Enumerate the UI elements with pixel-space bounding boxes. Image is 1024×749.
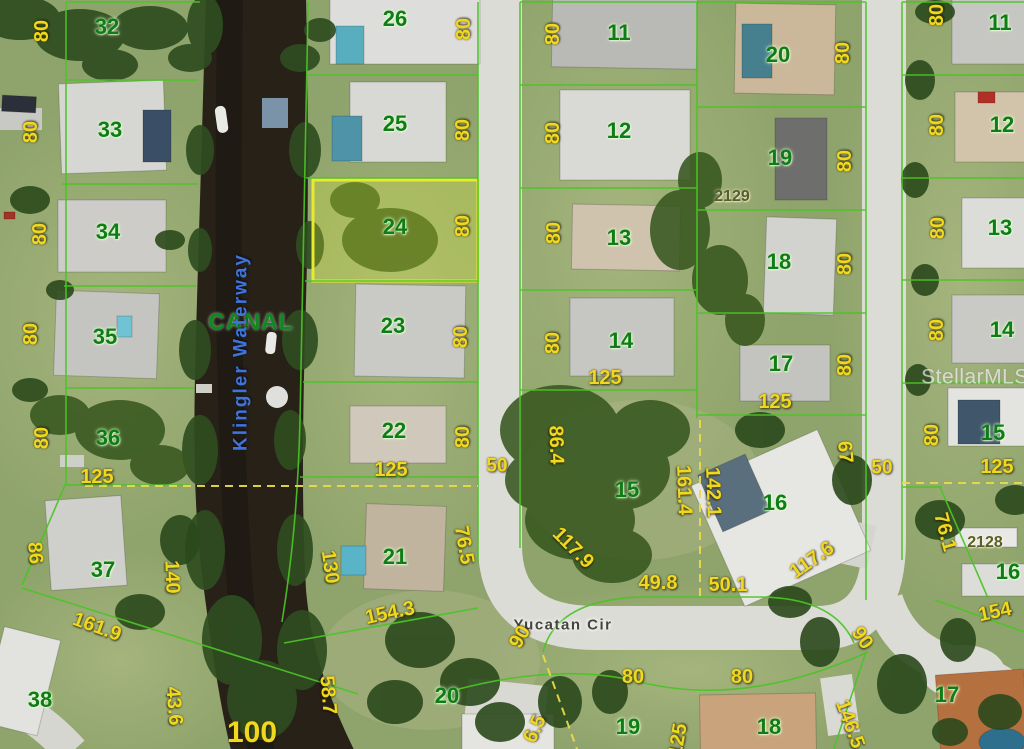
dimension-label: 146.5 <box>832 697 868 749</box>
dimension-label: 80 <box>835 150 855 172</box>
lot-number-label: 19 <box>616 716 640 738</box>
dimension-label: 161.4 <box>673 465 695 516</box>
lot-number-label: 34 <box>96 221 120 243</box>
dimension-label: 80 <box>927 114 947 136</box>
lot-number-label: 22 <box>382 420 406 442</box>
label-overlay: CANAL Klingler Waterway Yucatan Cir Stel… <box>0 0 1024 749</box>
lot-number-label: 12 <box>990 114 1014 136</box>
dimension-label: 80 <box>453 215 473 237</box>
dimension-label: 86 <box>24 541 46 565</box>
lot-number-label: 17 <box>769 353 793 375</box>
dimension-label: 58.7 <box>316 675 339 716</box>
dimension-label: 154 <box>977 599 1014 626</box>
house-number-label: 2128 <box>967 535 1003 551</box>
lot-number-label: 35 <box>93 326 117 348</box>
dimension-label: 80 <box>622 667 644 687</box>
lot-number-label: 15 <box>615 479 639 501</box>
watermark: StellarMLS <box>921 367 1024 388</box>
dimension-label: 117.6 <box>786 538 838 582</box>
dimension-label: 80 <box>543 122 563 144</box>
plat-map: CANAL Klingler Waterway Yucatan Cir Stel… <box>0 0 1024 749</box>
dimension-label: 80 <box>731 667 753 687</box>
dimension-label: 80 <box>922 424 942 446</box>
lot-number-label: 11 <box>607 22 630 44</box>
lot-number-label: 13 <box>988 217 1012 239</box>
dimension-label: 86.4 <box>545 425 566 465</box>
lot-number-label: 18 <box>757 716 781 738</box>
dimension-label: 125 <box>80 467 113 487</box>
dimension-label: 50 <box>871 459 892 478</box>
dimension-label: 80 <box>451 326 471 348</box>
dimension-label: 125 <box>588 368 621 388</box>
dimension-label: 80 <box>32 20 52 42</box>
house-number-label: 2129 <box>714 189 750 205</box>
dimension-label: 80 <box>30 223 50 245</box>
lot-number-label: 11 <box>988 12 1011 34</box>
dimension-label: 80 <box>835 354 855 376</box>
lot-number-label: 20 <box>766 44 790 66</box>
lot-number-label: 37 <box>91 559 115 581</box>
lot-number-label: 38 <box>28 689 52 711</box>
lot-number-label: 18 <box>767 251 791 273</box>
dimension-label: 80 <box>544 222 564 244</box>
lot-number-label: 36 <box>96 427 120 449</box>
dimension-label: 90 <box>847 623 876 653</box>
dimension-label: 80 <box>454 18 474 40</box>
lot-number-label: 23 <box>381 315 405 337</box>
dimension-label: 76.5 <box>451 524 477 566</box>
dimension-label: 43.6 <box>162 686 185 727</box>
dimension-label: 142.1 <box>702 467 724 518</box>
lot-number-label: 12 <box>607 120 631 142</box>
dimension-label: 80 <box>32 427 52 449</box>
dimension-label: 80 <box>21 121 41 143</box>
dimension-label: 125 <box>665 722 690 749</box>
dimension-label: 125 <box>980 457 1013 477</box>
lot-number-label: 33 <box>98 119 122 141</box>
dimension-label: 80 <box>543 332 563 354</box>
waterway-name-label: Klingler Waterway <box>232 253 251 451</box>
dimension-label: 80 <box>453 119 473 141</box>
dimension-label: 80 <box>835 253 855 275</box>
dimension-label: 80 <box>833 42 853 64</box>
lot-number-label: 15 <box>981 422 1005 444</box>
lot-number-label: 25 <box>383 113 407 135</box>
dimension-label: 50 <box>486 457 507 476</box>
dimension-label: 125 <box>374 460 407 480</box>
dimension-label: 161.9 <box>70 609 124 645</box>
lot-number-label: 17 <box>935 684 959 706</box>
dimension-label: 130 <box>318 549 342 585</box>
dimension-label: 125 <box>758 392 791 412</box>
lot-number-label: 13 <box>607 227 631 249</box>
dimension-label: 80 <box>453 426 473 448</box>
dimension-label: 80 <box>543 23 563 45</box>
dimension-label: 80 <box>928 217 948 239</box>
dimension-label: 67 <box>834 440 856 464</box>
lot-number-label: 16 <box>996 561 1020 583</box>
lot-number-label: 20 <box>435 685 459 707</box>
dimension-label: 100 <box>227 718 277 748</box>
lot-number-label: 14 <box>609 330 633 352</box>
dimension-label: 76.1 <box>930 511 959 554</box>
dimension-label: 117.9 <box>549 524 598 573</box>
lot-number-label: 24 <box>383 216 407 238</box>
lot-number-label: 14 <box>990 319 1014 341</box>
lot-number-label: 32 <box>95 16 119 38</box>
dimension-label: 154.3 <box>363 598 416 628</box>
lot-number-label: 26 <box>383 8 407 30</box>
dimension-label: 80 <box>927 319 947 341</box>
dimension-label: 6.5 <box>520 712 550 746</box>
dimension-label: 140 <box>161 560 182 594</box>
lot-number-label: 19 <box>768 147 792 169</box>
lot-number-label: 21 <box>383 546 407 568</box>
dimension-label: 80 <box>21 323 41 345</box>
dimension-label: 80 <box>927 4 947 26</box>
dimension-label: 50.1 <box>709 575 748 595</box>
dimension-label: 49.8 <box>639 573 678 593</box>
lot-number-label: 16 <box>763 492 787 514</box>
